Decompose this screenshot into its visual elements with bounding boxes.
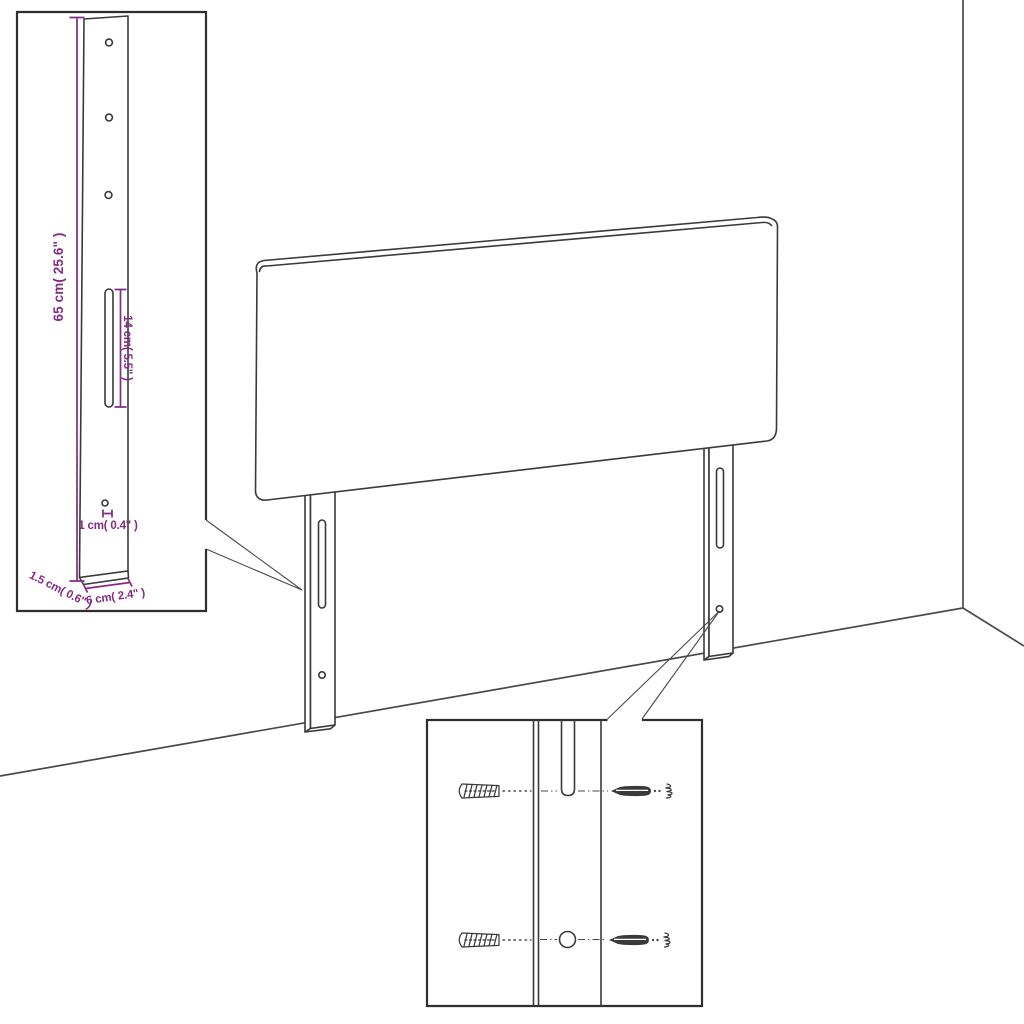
mounting-detail-box xyxy=(427,720,702,1006)
left-leg-slot xyxy=(319,520,326,608)
inset-mounting-hardware xyxy=(427,720,702,1006)
floor-line-right xyxy=(963,608,1024,646)
dim-leg-hole-top xyxy=(106,39,113,46)
assembly-diagram-page: 65 cm( 25.6" ) 14 cm( 5.5" ) 1 cm( 0.4" … xyxy=(0,0,1024,1024)
left-leg-side-face xyxy=(305,480,311,732)
right-leg-slot xyxy=(717,468,724,548)
dim-leg-hole-middle xyxy=(106,114,113,121)
label-leg-height: 65 cm( 25.6" ) xyxy=(51,233,66,322)
headboard-panel xyxy=(256,217,778,500)
left-leg xyxy=(305,480,335,732)
dim-leg-small-hole xyxy=(102,500,108,506)
label-slot-length: 14 cm( 5.5" ) xyxy=(121,315,133,381)
inset-leader-lines xyxy=(206,520,720,719)
leader-line-hw-right xyxy=(642,611,720,719)
left-leg-hole xyxy=(319,672,325,678)
leader-line-hw-left xyxy=(608,611,720,719)
dim-leg-slot xyxy=(105,289,113,407)
dim-leg-hole-lower xyxy=(105,192,112,199)
inset-leg-dimensions: 65 cm( 25.6" ) 14 cm( 5.5" ) 1 cm( 0.4" … xyxy=(17,12,206,611)
label-hole-diameter: 1 cm( 0.4" ) xyxy=(78,520,138,532)
assembly-diagram: 65 cm( 25.6" ) 14 cm( 5.5" ) 1 cm( 0.4" … xyxy=(0,0,1024,1024)
